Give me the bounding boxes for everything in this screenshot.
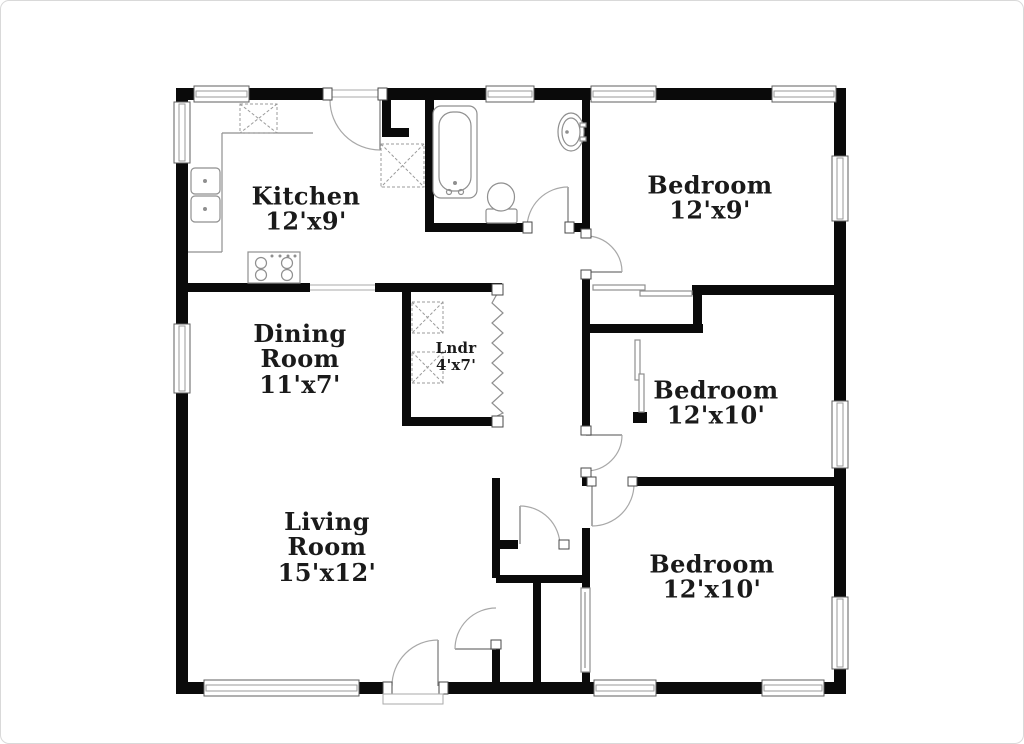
wall bbox=[402, 292, 411, 425]
window bbox=[204, 680, 359, 696]
window bbox=[832, 156, 848, 221]
wall bbox=[500, 540, 518, 549]
toilet bbox=[486, 183, 517, 223]
wall bbox=[492, 478, 500, 578]
wall bbox=[533, 583, 541, 682]
room-dimensions: 12'x10' bbox=[653, 403, 778, 428]
window bbox=[832, 401, 848, 468]
fixtures bbox=[188, 104, 586, 383]
window bbox=[594, 680, 656, 696]
bedroom-bottom-door-swing bbox=[587, 477, 637, 526]
wall bbox=[834, 467, 846, 598]
window bbox=[772, 86, 836, 102]
bedroom-top-door-swing bbox=[581, 229, 622, 279]
closet-sliding-door-bedroom-bottom bbox=[581, 588, 590, 672]
closet-door-swing bbox=[455, 608, 501, 649]
wall bbox=[633, 477, 834, 486]
wall bbox=[402, 417, 502, 426]
room-label-bedroom-top-right: Bedroom 12'x9' bbox=[647, 173, 772, 224]
wall bbox=[692, 285, 834, 295]
kitchen-cabinet bbox=[240, 104, 277, 133]
wall bbox=[834, 668, 846, 694]
wall bbox=[633, 412, 647, 423]
room-label-kitchen: Kitchen 12'x9' bbox=[252, 184, 361, 235]
room-dimensions: 4'x7' bbox=[436, 357, 477, 374]
wall bbox=[375, 283, 502, 292]
wall bbox=[176, 162, 188, 325]
window bbox=[832, 597, 848, 669]
wall bbox=[834, 220, 846, 402]
wall bbox=[496, 575, 588, 583]
wall bbox=[382, 100, 391, 128]
room-dimensions: 11'x7' bbox=[253, 372, 346, 397]
wall bbox=[176, 392, 188, 694]
room-dimensions: 12'x9' bbox=[647, 198, 772, 223]
wall bbox=[582, 324, 703, 333]
closet-sliding-door-bedroom-top bbox=[593, 285, 692, 296]
wall bbox=[188, 283, 310, 292]
front-door-swing bbox=[383, 640, 448, 704]
floor-plan-drawing bbox=[0, 0, 1024, 744]
wall bbox=[380, 88, 487, 100]
room-name: Bedroom bbox=[653, 378, 778, 403]
room-name: Lndr bbox=[436, 340, 477, 357]
window bbox=[174, 324, 190, 393]
window bbox=[591, 86, 656, 102]
room-label-living-room: Living Room 15'x12' bbox=[278, 509, 377, 585]
window bbox=[486, 86, 534, 102]
opening-header bbox=[310, 285, 375, 290]
washer bbox=[412, 302, 443, 333]
room-label-bedroom-bottom-right: Bedroom 12'x10' bbox=[649, 552, 774, 603]
doors bbox=[310, 88, 692, 704]
room-label-dining-room: Dining Room 11'x7' bbox=[253, 321, 346, 397]
room-name: Room bbox=[253, 346, 346, 371]
room-name: Kitchen bbox=[252, 184, 361, 209]
wall bbox=[582, 100, 590, 238]
room-name: Room bbox=[278, 534, 377, 559]
floor-plan-canvas: Kitchen 12'x9' Bedroom 12'x9' Dining Roo… bbox=[0, 0, 1024, 744]
room-name: Living bbox=[278, 509, 377, 534]
stove bbox=[248, 252, 300, 283]
room-label-bedroom-middle-right: Bedroom 12'x10' bbox=[653, 378, 778, 429]
wall bbox=[492, 647, 500, 682]
bedroom-middle-door-swing bbox=[581, 426, 622, 477]
window bbox=[762, 680, 824, 696]
back-door-swing bbox=[323, 88, 387, 150]
wall bbox=[382, 128, 409, 137]
wall bbox=[176, 88, 188, 103]
wall bbox=[533, 88, 592, 100]
room-dimensions: 12'x9' bbox=[252, 209, 361, 234]
window bbox=[174, 102, 190, 163]
wall bbox=[582, 672, 590, 682]
room-name: Bedroom bbox=[649, 552, 774, 577]
wall bbox=[582, 276, 590, 433]
kitchen-sink bbox=[191, 168, 220, 222]
room-name: Dining bbox=[253, 321, 346, 346]
pantry-cabinet bbox=[381, 144, 424, 187]
room-label-laundry: Lndr 4'x7' bbox=[436, 340, 477, 375]
bathroom-sink bbox=[558, 113, 586, 151]
closet-sliding-door-bedroom-middle bbox=[635, 340, 644, 412]
laundry-accordion-door bbox=[492, 284, 503, 427]
wall bbox=[655, 88, 773, 100]
hall-door-swing bbox=[520, 506, 569, 549]
bathtub bbox=[433, 106, 477, 198]
room-dimensions: 12'x10' bbox=[649, 577, 774, 602]
room-dimensions: 15'x12' bbox=[278, 560, 377, 585]
wall bbox=[248, 88, 328, 100]
wall bbox=[440, 682, 595, 694]
bathroom-door-swing bbox=[523, 187, 574, 233]
window bbox=[194, 86, 249, 102]
wall bbox=[655, 682, 763, 694]
wall bbox=[434, 223, 527, 232]
door-threshold bbox=[383, 694, 443, 704]
room-name: Bedroom bbox=[647, 173, 772, 198]
